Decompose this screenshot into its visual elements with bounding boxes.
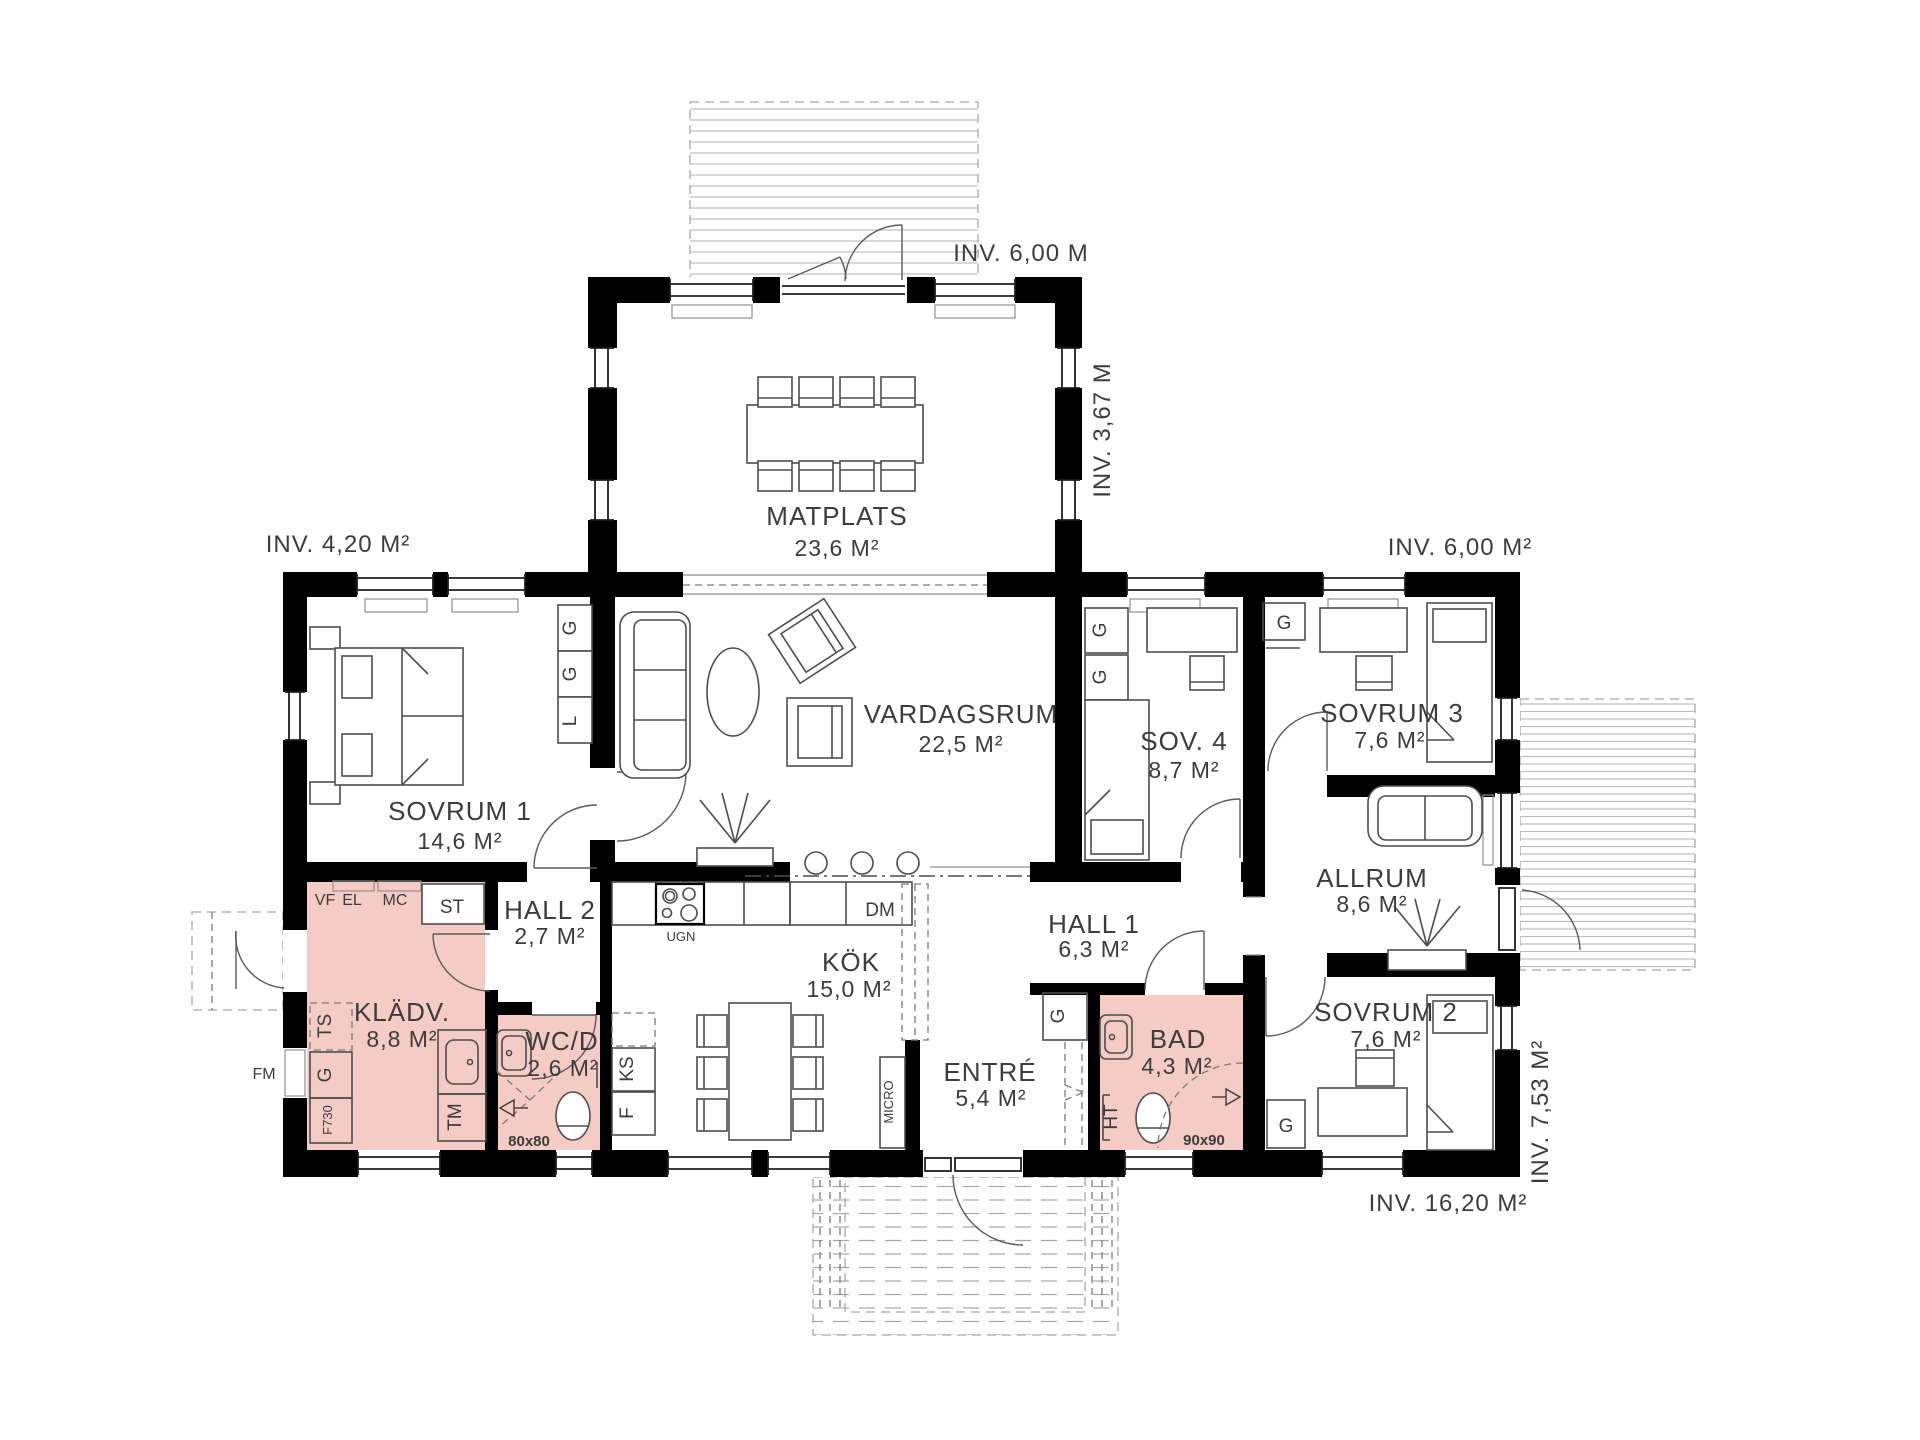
label-sovrum3-area: 7,6 M²	[1354, 727, 1425, 753]
window-sovrum3-n	[1323, 572, 1405, 597]
wcd-toilet	[556, 1092, 590, 1140]
window-sov4	[1127, 572, 1205, 597]
label-sovrum1: SOVRUM 1	[388, 796, 532, 826]
label-kladv-area: 8,8 M²	[366, 1026, 437, 1052]
entry-door	[923, 1150, 1023, 1177]
label-bad: BAD	[1150, 1024, 1206, 1054]
window-sovrum2-south	[1322, 1150, 1403, 1177]
fireplace-vardagsrum	[697, 793, 773, 866]
label-matplats: MATPLATS	[766, 501, 907, 531]
window-wcd-south	[556, 1150, 592, 1177]
label-vardagsrum-area: 22,5 M²	[919, 731, 1004, 757]
label-sovrum2: SOVRUM 2	[1314, 997, 1458, 1027]
label-sovrum3: SOVRUM 3	[1320, 698, 1464, 728]
label-wcd-area: 2,6 M²	[527, 1055, 598, 1081]
label-ht: HT	[1101, 1104, 1122, 1130]
label-sov4: SOV. 4	[1140, 726, 1227, 756]
label-entre-area: 5,4 M²	[955, 1085, 1026, 1111]
entry-stoop	[192, 912, 283, 1010]
terrace-right	[1520, 699, 1695, 970]
label-dm: DM	[865, 900, 895, 921]
inv-left: INV. 4,20 M²	[266, 531, 411, 558]
inv-bottom: INV. 16,20 M²	[1369, 1190, 1528, 1217]
door-allrum-deck	[1495, 885, 1520, 953]
label-hall1-area: 6,3 M²	[1058, 936, 1129, 962]
label-shower-90: 90x90	[1183, 1132, 1225, 1149]
window-sovrum3-east	[1495, 698, 1520, 740]
label-f730: F730	[320, 1105, 335, 1135]
terrace-top	[690, 102, 978, 280]
label-g-sov4-b: G	[1090, 670, 1111, 685]
label-vardagsrum: VARDAGSRUM	[864, 699, 1058, 729]
label-l-sovrum1: L	[560, 716, 581, 727]
window-sovrum1-a	[357, 572, 433, 597]
label-kok-area: 15,0 M²	[807, 976, 892, 1002]
label-micro: MICRO	[881, 1080, 896, 1123]
bad-toilet	[1136, 1093, 1170, 1143]
window-matplats-b	[935, 277, 1015, 303]
label-vf: VF	[315, 892, 336, 909]
patio-door-matplats	[780, 277, 907, 303]
label-matplats-area: 23,6 M²	[795, 535, 880, 561]
window-kok-south-a	[668, 1150, 752, 1177]
window-matplats-a	[670, 277, 753, 303]
door-bad	[1145, 931, 1204, 990]
label-kladv: KLÄDV.	[354, 997, 450, 1027]
door-west-exterior	[236, 931, 284, 989]
inv-right: INV. 6,00 M²	[1388, 534, 1533, 561]
window-wing-right-a	[1055, 348, 1082, 388]
label-el: EL	[342, 892, 362, 909]
window-allrum-east	[1495, 793, 1520, 868]
window-kladv-south	[358, 1150, 440, 1177]
label-sovrum2-area: 7,6 M²	[1350, 1026, 1421, 1052]
inv-top: INV. 6,00 M	[953, 240, 1089, 267]
inv-wing-side: INV. 3,67 M	[1089, 362, 1116, 498]
label-g-sovrum3: G	[1277, 613, 1292, 634]
label-bad-area: 4,3 M²	[1141, 1053, 1212, 1079]
label-hall2: HALL 2	[504, 895, 596, 925]
label-g-hall1: G	[1048, 1009, 1069, 1024]
label-g-sovrum2: G	[1279, 1116, 1294, 1137]
window-sovrum2-east	[1495, 1006, 1520, 1050]
furniture-vardagsrum	[620, 599, 855, 866]
furniture-matplats	[747, 377, 923, 491]
label-wcd: WC/D	[525, 1026, 598, 1056]
label-sovrum1-area: 14,6 M²	[418, 828, 503, 854]
label-entre: ENTRÉ	[943, 1057, 1036, 1087]
window-bad-south	[1125, 1150, 1193, 1177]
label-ks: KS	[617, 1056, 638, 1081]
label-allrum-area: 8,6 M²	[1336, 891, 1407, 917]
label-hall1: HALL 1	[1048, 909, 1140, 939]
label-sov4-area: 8,7 M²	[1148, 757, 1219, 783]
label-hall2-area: 2,7 M²	[514, 923, 585, 949]
label-ts: TS	[315, 1014, 336, 1038]
label-tm: TM	[445, 1103, 466, 1130]
door-sov4	[1181, 799, 1240, 858]
label-allrum: ALLRUM	[1316, 863, 1427, 893]
label-kok: KÖK	[822, 947, 880, 977]
window-kok-south-b	[768, 1150, 830, 1177]
label-g-sovrum1-b: G	[560, 667, 581, 682]
label-mc: MC	[383, 892, 408, 909]
window-wing-left-b	[588, 480, 617, 520]
label-f: F	[617, 1107, 638, 1119]
label-ugn: UGN	[667, 929, 696, 944]
furniture-sovrum1	[310, 605, 592, 804]
stove	[656, 884, 704, 924]
floor-plan: MATPLATS 23,6 M² VARDAGSRUM 22,5 M² SOVR…	[0, 0, 1920, 1440]
inv-east: INV. 7,53 M²	[1527, 1040, 1554, 1185]
label-g-kladv: G	[315, 1068, 336, 1083]
label-g-sovrum1-a: G	[560, 621, 581, 636]
window-sovrum1-b	[448, 572, 525, 597]
meter-cabinet-fm	[283, 1048, 307, 1098]
window-sovrum1-west	[283, 692, 307, 740]
door-sovrum3	[1268, 712, 1327, 771]
window-wing-left-a	[588, 348, 617, 388]
door-hall2	[534, 805, 597, 868]
label-g-sov4-a: G	[1090, 623, 1111, 638]
terrace-bottom	[813, 1177, 1118, 1335]
door-sovrum1	[617, 772, 686, 841]
door-opening-west	[283, 930, 307, 992]
label-fm: FM	[252, 1066, 275, 1083]
label-shower-80: 80x80	[508, 1133, 550, 1150]
window-wing-right-b	[1055, 480, 1082, 520]
label-st: ST	[440, 897, 465, 918]
